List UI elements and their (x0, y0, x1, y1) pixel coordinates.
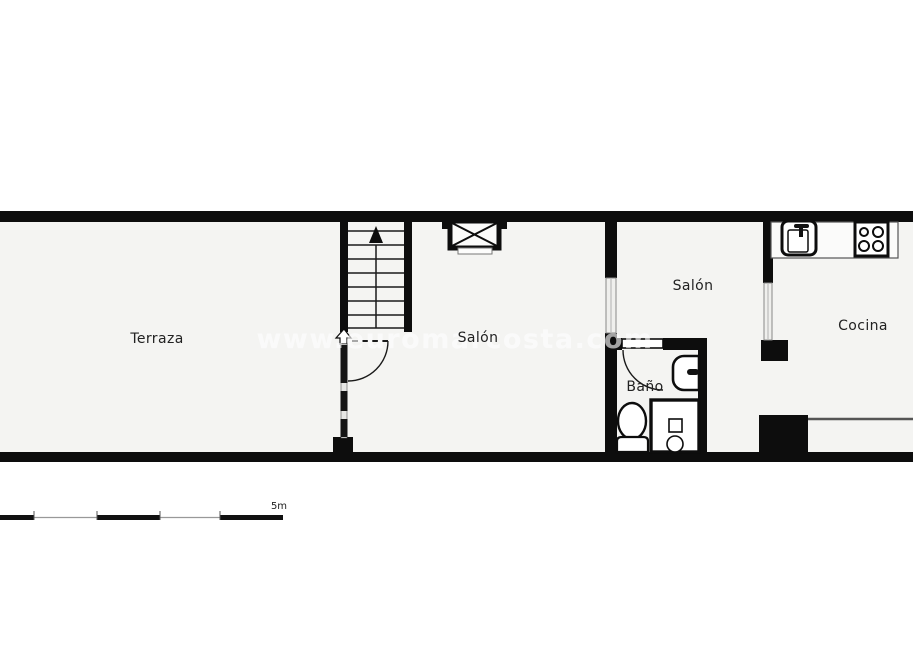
toilet-tank-icon (617, 437, 648, 452)
divider-cocina-block (759, 415, 808, 452)
partition-mullion (341, 419, 348, 437)
room-label-cocina: Cocina (838, 318, 888, 334)
watermark-text: www.euromarcosta.com (256, 324, 653, 355)
room-label-bano: Baño (626, 379, 663, 395)
room-label-salon-main: Salón (458, 330, 499, 346)
divider-salon-upper (605, 222, 617, 278)
sink-faucet-icon (687, 369, 699, 375)
room-label-salon-second: Salón (673, 278, 714, 294)
shaft-ledge (458, 248, 492, 254)
room-label-terraza: Terraza (129, 331, 183, 347)
divider-cocina-pier (761, 340, 788, 361)
scale-segment-thick (220, 515, 283, 520)
hob-burner (873, 227, 883, 237)
terraza-partition-base (333, 437, 353, 452)
hob-burner (859, 241, 869, 251)
exterior-wall-bottom (0, 452, 913, 462)
floor-plan-page: www.euromarcosta.com Terraza Salón Salón… (0, 0, 913, 672)
hob-icon (855, 222, 888, 256)
scale-bar-label: 5m (271, 501, 287, 512)
kitchen-faucet-stem (799, 226, 803, 237)
shower-drain-square (669, 419, 682, 432)
hob-burner (873, 241, 883, 251)
stair-wall-left (340, 222, 348, 332)
glazed-partition (341, 344, 348, 438)
toilet-bowl-icon (618, 403, 646, 439)
scale-segment-thick (0, 515, 34, 520)
partition-mullion (341, 391, 348, 411)
shower-drain-circle (667, 436, 683, 452)
floor-plan-drawing: www.euromarcosta.com Terraza Salón Salón… (0, 0, 913, 672)
stair-wall-right (404, 222, 412, 332)
scale-bar: 5m (0, 501, 287, 520)
hob-burner (860, 228, 868, 236)
kitchen-sink-basin (788, 230, 808, 252)
shaft-crossed-box-icon (450, 221, 499, 254)
scale-segment-thick (97, 515, 160, 520)
